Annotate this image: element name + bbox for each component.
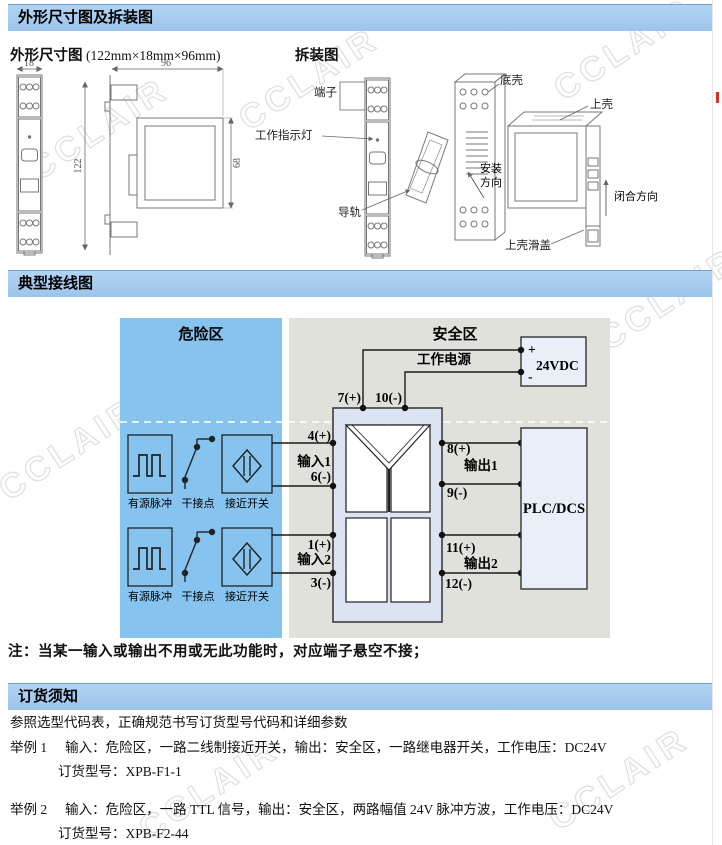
label-bottom-shell: 底壳 bbox=[500, 73, 523, 87]
plus-sign: + bbox=[528, 342, 536, 357]
page-edge-line bbox=[712, 0, 713, 845]
label-close-dir: 闭合方向 bbox=[614, 189, 658, 203]
power-label: 工作电源 bbox=[417, 351, 471, 367]
dim-body: 68 bbox=[232, 158, 243, 168]
terminal-3: 3(-) bbox=[311, 575, 331, 590]
section-header-wiring: 典型接线图 bbox=[8, 270, 713, 297]
minus-sign: - bbox=[528, 369, 533, 384]
example-desc: 输入：危险区，一路 TTL 信号，输出：安全区，两路幅值 24V 脉冲方波，工作… bbox=[65, 798, 613, 818]
disassembly-front-view: 端子 工作指示灯 bbox=[255, 78, 390, 258]
hazard-zone bbox=[120, 318, 282, 638]
terminal-12: 12(-) bbox=[445, 576, 472, 591]
example-desc: 输入：危险区，一路二线制接近开关，输出：安全区，一路继电器开关，工作电压：DC2… bbox=[65, 736, 607, 756]
proximity-label: 接近开关 bbox=[225, 589, 269, 603]
power-supply-box: + 24VDC - bbox=[521, 337, 586, 386]
label-install-dir: 方向 bbox=[480, 175, 502, 189]
terminal-1: 1(+) bbox=[308, 537, 331, 552]
example-label: 举例 2 bbox=[10, 798, 47, 818]
terminal-11: 11(+) bbox=[446, 540, 475, 555]
terminal-6: 6(-) bbox=[311, 469, 331, 484]
datasheet-page: CCLAIR CCLAIR CCLAIR CCLAIR CCLAIR CCLAI… bbox=[0, 0, 722, 845]
input2-label: 输入2 bbox=[297, 551, 331, 567]
terminal-10: 10(-) bbox=[375, 390, 402, 405]
isolator-device bbox=[333, 408, 442, 622]
hazard-zone-title: 危险区 bbox=[178, 325, 223, 343]
front-view-drawing: 18 bbox=[17, 60, 42, 255]
contact-label: 干接点 bbox=[182, 590, 215, 603]
dim-height: 122 bbox=[73, 159, 84, 174]
contact-label: 干接点 bbox=[182, 497, 215, 510]
ordering-intro: 参照选型代码表，正确规范书写订货型号代码和详细参数 bbox=[10, 711, 348, 731]
terminal-7: 7(+) bbox=[338, 390, 361, 405]
wiring-note: 注：当某一输入或输出不用或无此功能时，对应端子悬空不接； bbox=[8, 640, 428, 661]
input1-label: 输入1 bbox=[297, 453, 331, 469]
terminal-9: 9(-) bbox=[447, 485, 467, 500]
top-shell-drawing: 上壳 闭合方向 上壳滑盖 bbox=[505, 97, 658, 252]
dim-depth: 96 bbox=[161, 60, 171, 69]
terminal-4: 4(+) bbox=[308, 428, 331, 443]
label-terminal: 端子 bbox=[314, 86, 337, 99]
technical-drawings: 18 96 122 68 bbox=[0, 60, 722, 270]
red-edge-mark bbox=[716, 92, 719, 103]
rail-drawing: 导轨 bbox=[338, 132, 448, 219]
section-title: 订货须知 bbox=[8, 684, 713, 710]
label-indicator: 工作指示灯 bbox=[255, 128, 313, 142]
output2-label: 输出2 bbox=[464, 555, 498, 571]
terminal-8: 8(+) bbox=[447, 441, 470, 456]
label-top-cover: 上壳滑盖 bbox=[505, 238, 551, 252]
label-install-dir: 安装 bbox=[480, 161, 502, 175]
safe-zone-title: 安全区 bbox=[432, 325, 477, 343]
side-view-drawing: 96 122 68 bbox=[73, 60, 243, 255]
wiring-diagram: 危险区 安全区 工作电源 + 24VDC - 7(+) bbox=[0, 300, 722, 645]
pulse-label: 有源脉冲 bbox=[128, 589, 172, 603]
label-rail: 导轨 bbox=[338, 205, 361, 219]
section-header-outline: 外形尺寸图及拆装图 bbox=[8, 4, 713, 31]
label-top-shell: 上壳 bbox=[590, 97, 613, 111]
ordering-model-2: 订货型号：XPB-F2-44 bbox=[58, 822, 189, 842]
pulse-label: 有源脉冲 bbox=[128, 496, 172, 510]
output1-label: 输出1 bbox=[464, 457, 498, 473]
supply-label: 24VDC bbox=[536, 358, 579, 373]
ordering-example-2: 举例 2 输入：危险区，一路 TTL 信号，输出：安全区，两路幅值 24V 脉冲… bbox=[10, 798, 613, 818]
proximity-label: 接近开关 bbox=[225, 496, 269, 510]
section-title: 典型接线图 bbox=[8, 271, 713, 297]
dim-width: 18 bbox=[24, 60, 34, 69]
plc-label: PLC/DCS bbox=[523, 501, 585, 517]
ordering-model-1: 订货型号：XPB-F1-1 bbox=[58, 760, 182, 780]
example-label: 举例 1 bbox=[10, 736, 47, 756]
plc-box: PLC/DCS bbox=[521, 428, 587, 589]
section-title: 外形尺寸图及拆装图 bbox=[8, 5, 713, 31]
section-header-ordering: 订货须知 bbox=[8, 683, 713, 710]
ordering-example-1: 举例 1 输入：危险区，一路二线制接近开关，输出：安全区，一路继电器开关，工作电… bbox=[10, 736, 607, 756]
